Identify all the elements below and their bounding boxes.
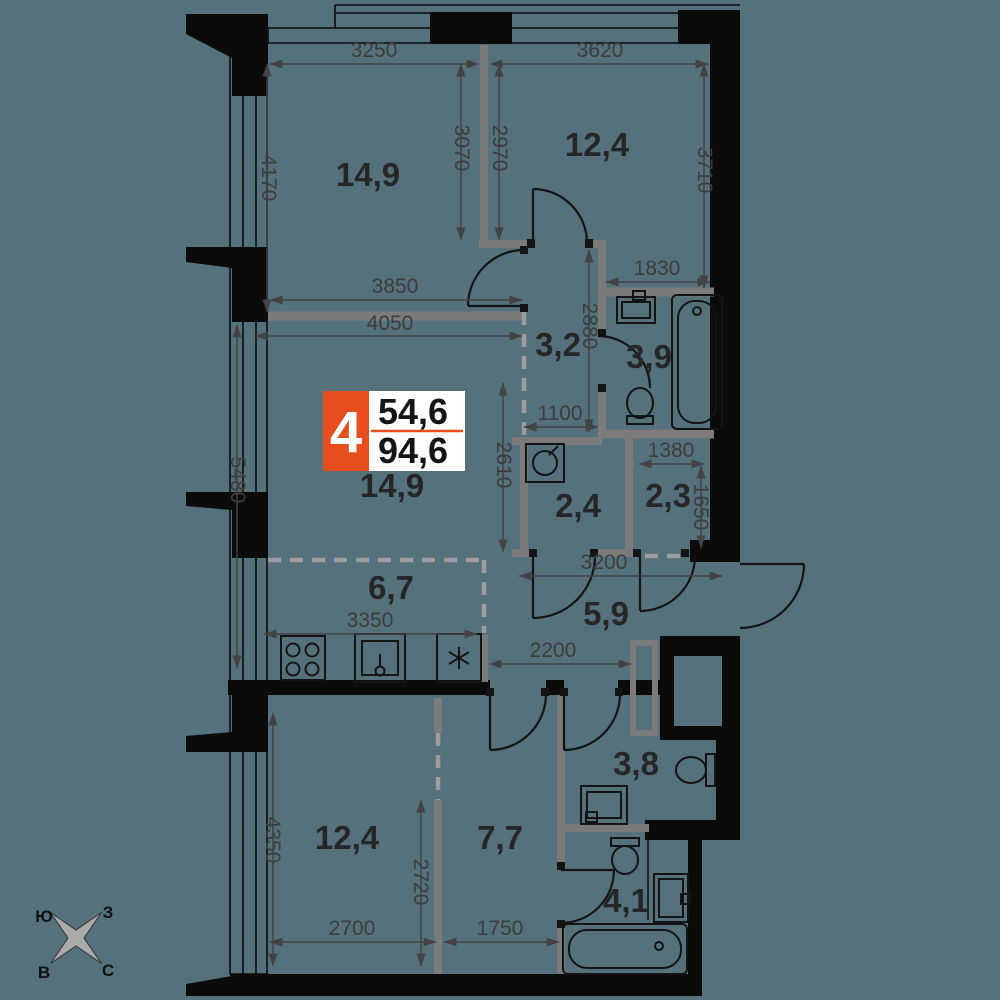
room-label-bedroom-bottom-mid: 7,7 [477, 819, 523, 856]
door-living-room [468, 250, 524, 306]
dimension-2880: 2880 [578, 303, 601, 350]
dimension-3710: 3710 [693, 147, 716, 194]
room-label-bathroom-bottom: 4,1 [603, 882, 649, 919]
room-label-kitchen: 6,7 [368, 569, 414, 606]
floor-plan-drawing: 3250 3620 1830 3850 4050 1100 1380 3200 … [0, 0, 1000, 1000]
dimension-2720: 2720 [409, 859, 432, 906]
facade-column [186, 680, 268, 752]
compass-star-icon [51, 913, 102, 964]
lower-sink-icon [648, 840, 690, 922]
compass-west: З [103, 903, 114, 922]
dimension-3850: 3850 [372, 275, 419, 298]
kitchen-sink-icon [355, 634, 405, 682]
apartment-badge: 4 54,6 94,6 [323, 391, 465, 471]
dimension-5480: 5480 [226, 457, 249, 504]
toilet-upper-icon [627, 388, 653, 424]
room-label-wc-bottom: 3,8 [613, 745, 659, 782]
dimension-2700: 2700 [329, 917, 376, 940]
dimension-2200: 2200 [530, 639, 577, 662]
room-label-storage: 2,3 [645, 477, 691, 514]
dimension-1830: 1830 [634, 257, 681, 280]
dimension-3070: 3070 [450, 125, 473, 172]
door-bedroom-bottom-mid [490, 694, 546, 750]
dimension-4350: 4350 [261, 817, 284, 864]
entrance-door [740, 564, 804, 628]
bottom-wall [230, 974, 702, 996]
door-bedroom-top-right [533, 189, 587, 243]
facade-column [186, 976, 268, 996]
room-label-storage-small: 2,4 [555, 487, 602, 524]
dimension-3620: 3620 [577, 39, 624, 62]
dimension-3250: 3250 [351, 39, 398, 62]
right-wall-lower [716, 740, 740, 834]
wc-sink-icon [581, 786, 627, 824]
dishwasher-icon [437, 634, 481, 682]
room-label-bedroom-top-left: 14,9 [336, 156, 400, 193]
dimension-1750: 1750 [477, 917, 524, 940]
dimension-1380: 1380 [648, 439, 695, 462]
compass-east: В [38, 963, 50, 982]
room-label-bedroom-top-right: 12,4 [565, 126, 630, 163]
room-label-hallway: 5,9 [583, 595, 629, 632]
dimension-2970: 2970 [488, 125, 511, 172]
dimension-4050: 4050 [367, 312, 414, 335]
dimension-2610: 2610 [492, 442, 515, 489]
door-wc-bottom [564, 694, 620, 750]
dimension-3350: 3350 [347, 609, 394, 632]
facade-column [186, 247, 268, 322]
bathtub-lower-icon [563, 924, 687, 974]
corner-column [186, 14, 268, 96]
room-label-bedroom-bottom-left: 12,4 [315, 819, 380, 856]
dimension-4170: 4170 [257, 155, 280, 202]
washing-machine-icon [526, 444, 564, 482]
toilet-wc-icon [676, 754, 715, 786]
dimension-labels: 3250 3620 1830 3850 4050 1100 1380 3200 … [226, 39, 716, 940]
compass-north: С [102, 961, 114, 980]
dimension-1650: 1650 [689, 484, 712, 531]
compass-south: Ю [35, 907, 53, 926]
badge-room-count: 4 [330, 400, 362, 465]
dimension-1100: 1100 [537, 402, 582, 425]
room-label-living-room: 14,9 [360, 467, 424, 504]
compass-rose: Ю З В С [35, 903, 114, 982]
door-storage [640, 556, 695, 611]
toilet-lower-icon [611, 838, 639, 874]
room-label-bathroom-upper: 3,9 [626, 338, 672, 375]
room-label-hall-upper: 3,2 [535, 326, 581, 363]
floor-plan-page: 3250 3620 1830 3850 4050 1100 1380 3200 … [0, 0, 1000, 1000]
right-wall-upper [710, 10, 740, 542]
dimension-3200: 3200 [581, 551, 628, 574]
badge-total-area: 94,6 [378, 430, 448, 471]
stove-icon [281, 636, 325, 680]
badge-living-area: 54,6 [378, 391, 448, 432]
